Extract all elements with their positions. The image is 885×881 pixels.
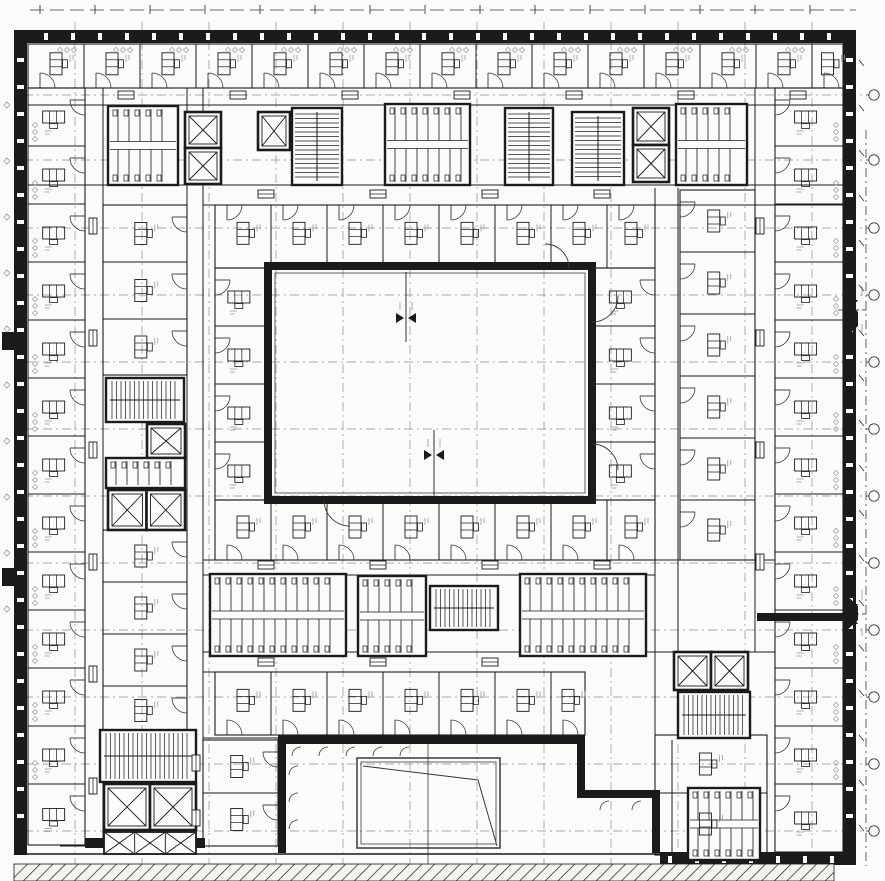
core-shaft (104, 832, 196, 854)
core-elev1 (147, 424, 185, 458)
window-slit (17, 409, 24, 413)
window-slit (530, 33, 534, 40)
window-slit (719, 33, 723, 40)
exterior-wall-top (14, 30, 856, 43)
cabinet-symbol (258, 561, 274, 569)
lower-courtyard-wall (577, 735, 585, 795)
window-slit (846, 166, 853, 170)
window-slit (830, 856, 834, 863)
cabinet-symbol (482, 190, 498, 198)
window-slit (846, 463, 853, 467)
cabinet-symbol (342, 91, 358, 99)
window-slit (314, 33, 318, 40)
window-slit (17, 706, 24, 710)
window-slit (17, 814, 24, 818)
window-slit (846, 490, 853, 494)
window-slit (17, 625, 24, 629)
window-slit (846, 139, 853, 143)
cabinet-symbol (370, 658, 386, 666)
cabinet-symbol (89, 554, 97, 570)
core-wc (106, 458, 185, 488)
core-elev2h (108, 490, 185, 530)
core-elev2h (104, 784, 196, 830)
window-slit (846, 814, 853, 818)
window-slit (846, 409, 853, 413)
core-stair (100, 730, 196, 782)
window-slit (17, 571, 24, 575)
window-slit (846, 112, 853, 116)
window-slit (846, 85, 853, 89)
core-elev2v (633, 108, 669, 182)
core-stair (292, 108, 342, 185)
window-slit (846, 517, 853, 521)
core-wc (210, 574, 346, 656)
window-slit (17, 247, 24, 251)
window-slit (17, 58, 24, 62)
interior-heavy-wall (757, 613, 843, 621)
wc-core-outline (676, 104, 747, 185)
window-slit (44, 33, 48, 40)
window-slit (17, 733, 24, 737)
window-slit (17, 85, 24, 89)
window-slit (17, 112, 24, 116)
window-slit (17, 301, 24, 305)
window-slit (17, 544, 24, 548)
window-slit (17, 220, 24, 224)
floor-plan-drawing (0, 0, 885, 881)
window-slit (17, 328, 24, 332)
window-slit (17, 787, 24, 791)
window-slit (125, 33, 129, 40)
window-slit (368, 33, 372, 40)
window-slit (233, 33, 237, 40)
cabinet-symbol (89, 218, 97, 234)
cabinet-symbol (482, 658, 498, 666)
cabinet-symbol (230, 91, 246, 99)
cabinet-symbol (566, 91, 582, 99)
wc-core-outline (106, 458, 185, 488)
window-slit (206, 33, 210, 40)
window-slit (776, 856, 780, 863)
window-slit (422, 33, 426, 40)
cabinet-symbol (594, 561, 610, 569)
cabinet-symbol (258, 190, 274, 198)
window-slit (584, 33, 588, 40)
cabinet-symbol (756, 554, 764, 570)
window-slit (827, 33, 831, 40)
window-slit (846, 58, 853, 62)
window-slit (17, 490, 24, 494)
lower-courtyard-wall (278, 735, 585, 744)
window-slit (638, 33, 642, 40)
cabinet-symbol (118, 91, 134, 99)
wc-core-outline (385, 104, 470, 185)
window-slit (668, 856, 672, 863)
window-slit (17, 166, 24, 170)
window-slit (846, 652, 853, 656)
core-stair (430, 586, 498, 630)
window-slit (846, 787, 853, 791)
window-slit (17, 598, 24, 602)
window-slit (611, 33, 615, 40)
cabinet-symbol (192, 810, 200, 826)
core-elev2h (674, 652, 748, 690)
wc-core-outline (688, 788, 760, 860)
window-slit (17, 517, 24, 521)
window-slit (846, 382, 853, 386)
window-slit (17, 436, 24, 440)
window-slit (846, 760, 853, 764)
window-slit (503, 33, 507, 40)
facade-nub (2, 332, 14, 350)
window-slit (449, 33, 453, 40)
cabinet-symbol (370, 561, 386, 569)
window-slit (260, 33, 264, 40)
cabinet-symbol (482, 561, 498, 569)
window-slit (557, 33, 561, 40)
window-slit (773, 33, 777, 40)
cabinet-symbol (89, 330, 97, 346)
window-slit (17, 463, 24, 467)
core-elev2v (185, 112, 221, 184)
window-slit (846, 436, 853, 440)
window-slit (287, 33, 291, 40)
core-wc (108, 106, 178, 185)
window-slit (800, 33, 804, 40)
core-wc (358, 576, 426, 656)
window-slit (846, 679, 853, 683)
cabinet-symbol (89, 442, 97, 458)
wc-core-outline (108, 106, 178, 185)
cabinet-symbol (790, 91, 806, 99)
wc-core-outline (210, 574, 346, 656)
window-slit (746, 33, 750, 40)
window-slit (17, 679, 24, 683)
window-slit (152, 33, 156, 40)
window-slit (846, 193, 853, 197)
core-stair (678, 692, 750, 738)
window-slit (98, 33, 102, 40)
cabinet-symbol (89, 666, 97, 682)
core-stair (505, 108, 553, 185)
core-wc (520, 574, 646, 656)
cabinet-symbol (258, 658, 274, 666)
window-slit (17, 193, 24, 197)
window-slit (395, 33, 399, 40)
lower-courtyard-wall (652, 790, 660, 853)
window-slit (71, 33, 75, 40)
window-slit (846, 571, 853, 575)
window-slit (17, 760, 24, 764)
cabinet-symbol (370, 190, 386, 198)
hatch-ground (14, 864, 834, 881)
window-slit (803, 856, 807, 863)
window-slit (692, 33, 696, 40)
window-slit (17, 139, 24, 143)
window-slit (17, 652, 24, 656)
window-slit (179, 33, 183, 40)
window-slit (17, 355, 24, 359)
cabinet-symbol (678, 91, 694, 99)
cabinet-symbol (756, 442, 764, 458)
window-slit (846, 247, 853, 251)
window-slit (846, 220, 853, 224)
core-wc (688, 788, 760, 860)
cabinet-symbol (192, 755, 200, 771)
cabinet-symbol (89, 778, 97, 794)
window-slit (341, 33, 345, 40)
facade-nub (2, 568, 14, 586)
core-wc (385, 104, 470, 185)
window-slit (846, 733, 853, 737)
core-wc (676, 104, 747, 185)
window-slit (665, 33, 669, 40)
window-slit (846, 355, 853, 359)
cabinet-symbol (454, 91, 470, 99)
window-slit (846, 274, 853, 278)
wc-core-outline (520, 574, 646, 656)
window-slit (17, 274, 24, 278)
cabinet-symbol (756, 218, 764, 234)
cabinet-symbol (756, 330, 764, 346)
lower-courtyard-wall (577, 790, 660, 798)
window-slit (846, 706, 853, 710)
core-stair (572, 112, 624, 185)
lower-courtyard-wall (278, 735, 286, 853)
window-slit (17, 382, 24, 386)
sheet (0, 0, 885, 881)
window-slit (846, 544, 853, 548)
core-stair (106, 378, 184, 422)
cabinet-symbol (594, 190, 610, 198)
core-elev1 (258, 112, 290, 150)
window-slit (476, 33, 480, 40)
